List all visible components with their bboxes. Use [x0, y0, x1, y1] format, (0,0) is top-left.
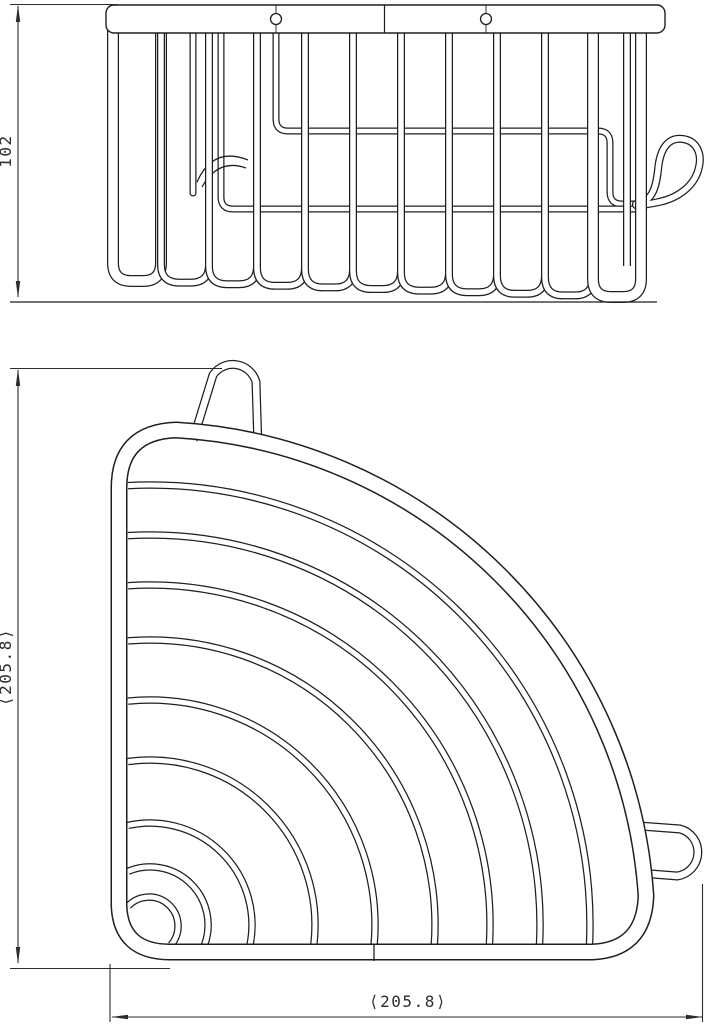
- lower-rail-wire: [221, 22, 640, 209]
- u-wire: [593, 22, 641, 297]
- arc-wire: [128, 485, 590, 945]
- dimension-label-plan-width: ⟨205.8⟩: [369, 992, 447, 1011]
- mounting-bar: [106, 5, 665, 33]
- u-wire: [353, 22, 401, 289]
- arrow-down-icon: [16, 947, 20, 964]
- dimension-label-plan-height: ⟨205.8⟩: [0, 628, 15, 706]
- u-wire: [161, 22, 209, 283]
- dim-side-height: 102: [0, 5, 118, 299]
- plan-view: [119, 364, 698, 961]
- arrow-up-icon: [16, 369, 20, 386]
- u-wire: [449, 22, 497, 292]
- u-wire: [545, 22, 593, 295]
- u-wire: [113, 22, 161, 281]
- mounting-bar-body: [106, 5, 665, 33]
- corner-basket-engineering-drawing: 102 ⟨205.8⟩ ⟨205.8⟩: [0, 0, 714, 1024]
- lower-rail-wire-core: [221, 22, 640, 209]
- dimension-label-side-height: 102: [0, 134, 15, 167]
- u-wire: [209, 22, 257, 284]
- arrow-up-icon: [16, 5, 20, 22]
- u-wire-core: [113, 22, 161, 281]
- u-wire-core: [257, 22, 305, 286]
- u-wire-core: [209, 22, 257, 284]
- basket-side-wires: [113, 22, 700, 297]
- u-wire-core: [593, 22, 641, 297]
- outer-rim-frame-core: [119, 430, 646, 952]
- u-wire-core: [161, 22, 209, 283]
- u-wire: [257, 22, 305, 286]
- screw-hole-left: [271, 14, 282, 25]
- screw-hole-right: [481, 14, 492, 25]
- u-wire-core: [401, 22, 449, 291]
- u-wire-core: [353, 22, 401, 289]
- u-wire-core: [305, 22, 353, 287]
- u-wire-core: [545, 22, 593, 295]
- u-wire-core: [497, 22, 545, 294]
- technical-drawing-page: 102 ⟨205.8⟩ ⟨205.8⟩: [0, 0, 714, 1024]
- u-wire-core: [449, 22, 497, 292]
- outer-rim-frame: [119, 430, 646, 952]
- u-wire: [497, 22, 545, 294]
- arrow-down-icon: [16, 281, 20, 298]
- side-elevation-view: [10, 5, 700, 302]
- arrow-left-icon: [111, 1015, 128, 1019]
- arrow-right-icon: [686, 1015, 703, 1019]
- u-wire: [401, 22, 449, 291]
- u-wire: [305, 22, 353, 287]
- basket-bottom-arc-wires: [128, 485, 590, 945]
- arc-wire-core: [128, 485, 590, 945]
